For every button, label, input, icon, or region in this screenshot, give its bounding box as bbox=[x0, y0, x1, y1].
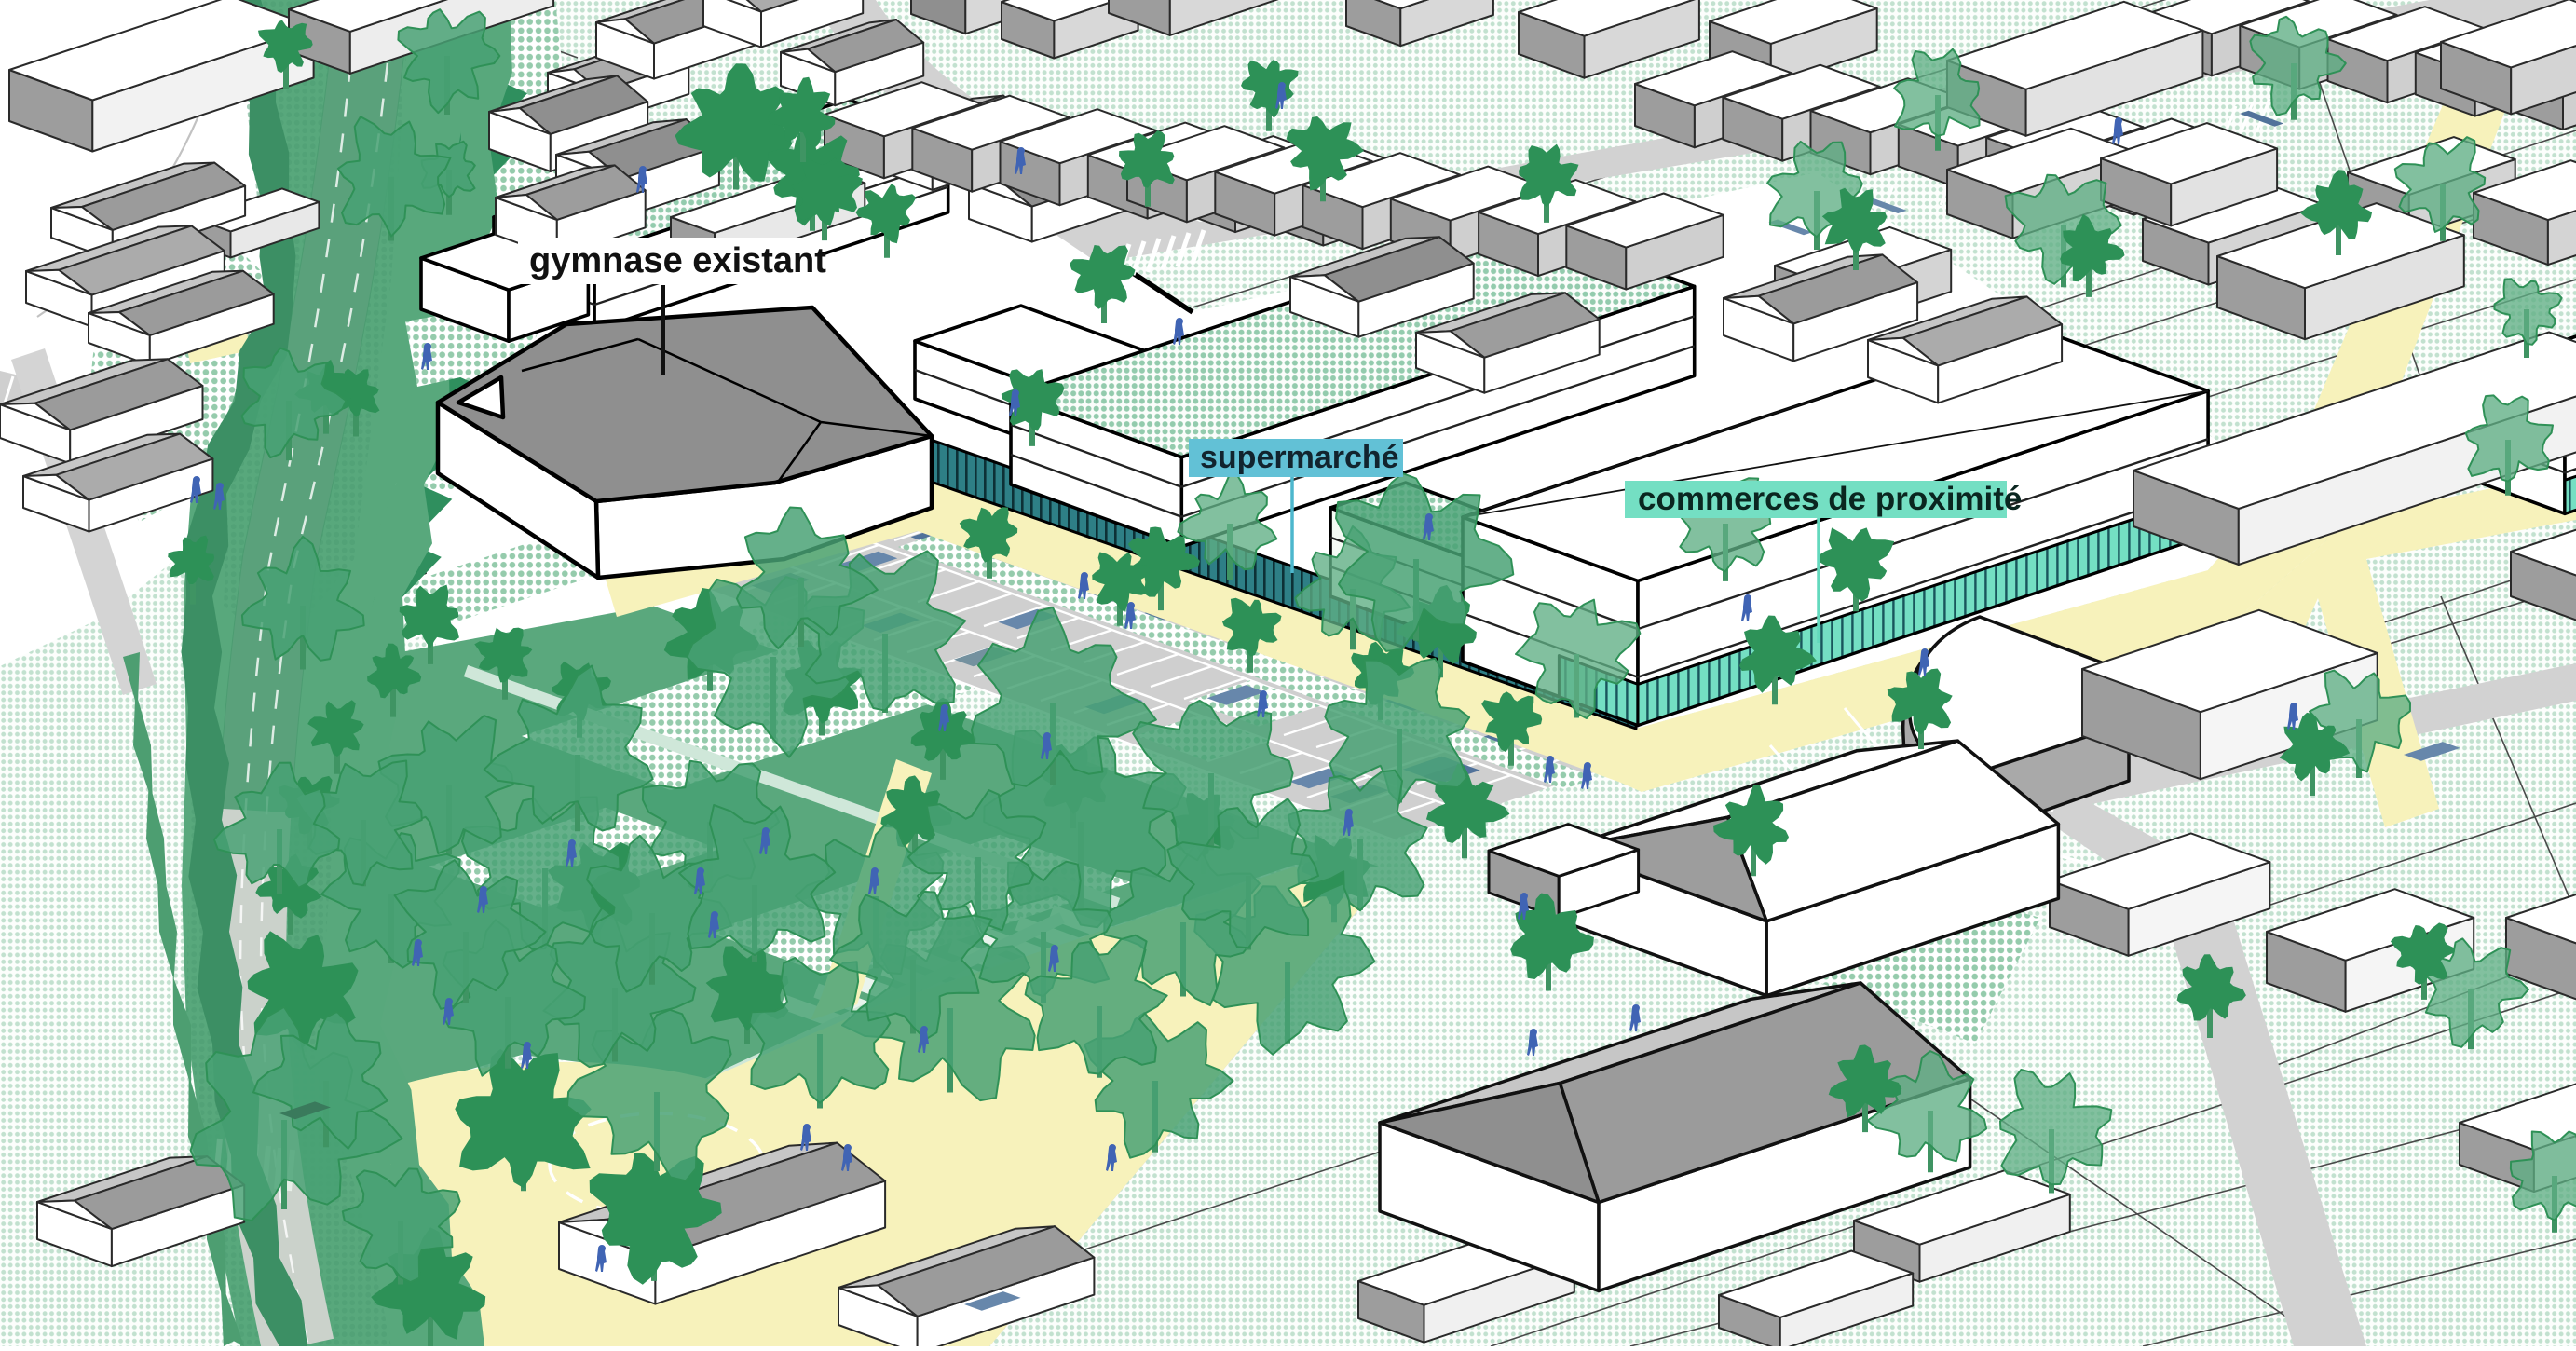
svg-text:gymnase existant: gymnase existant bbox=[529, 241, 826, 280]
svg-text:commerces de proximité: commerces de proximité bbox=[1638, 481, 2022, 517]
svg-text:supermarché: supermarché bbox=[1200, 440, 1399, 475]
